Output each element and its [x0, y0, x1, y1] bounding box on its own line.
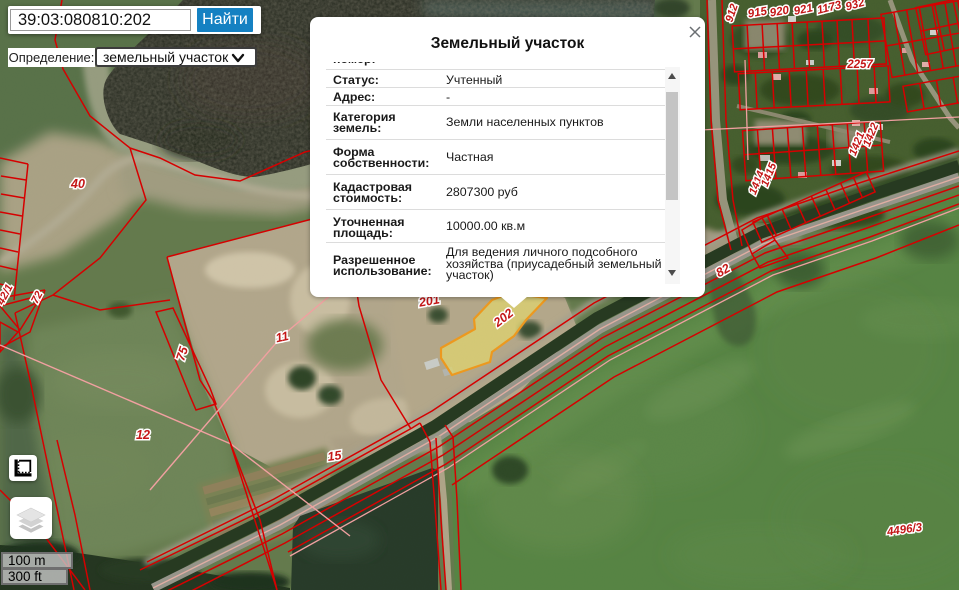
svg-text:40: 40 — [70, 177, 85, 191]
svg-text:12: 12 — [136, 428, 150, 442]
svg-text:2257: 2257 — [846, 59, 873, 71]
